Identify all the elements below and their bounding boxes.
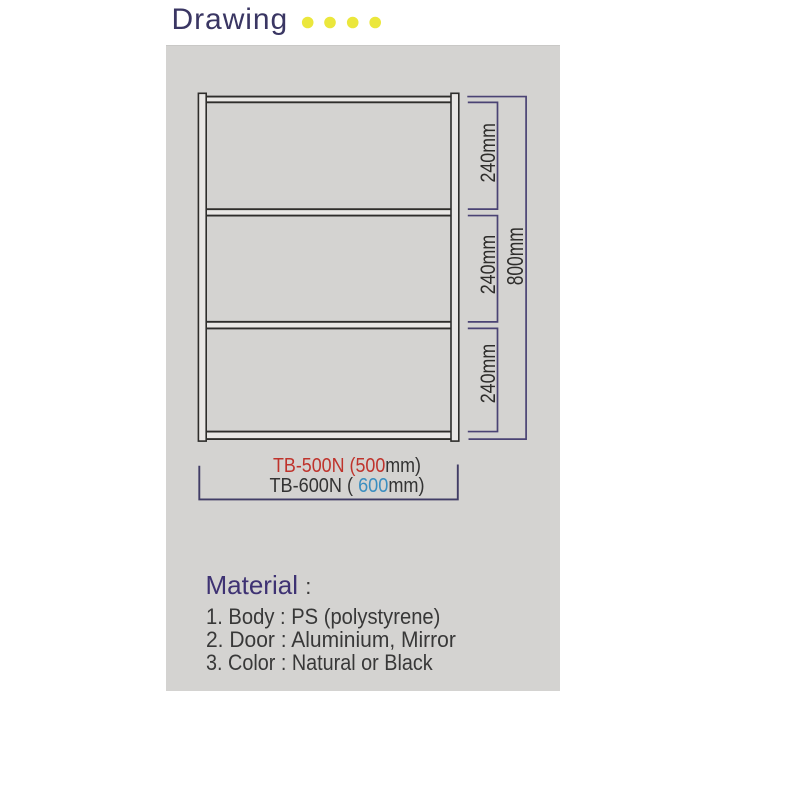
svg-text:240mm: 240mm <box>477 344 500 404</box>
svg-text:240mm: 240mm <box>477 235 500 295</box>
svg-text:800mm: 800mm <box>502 227 528 285</box>
svg-text:240mm: 240mm <box>477 123 500 183</box>
